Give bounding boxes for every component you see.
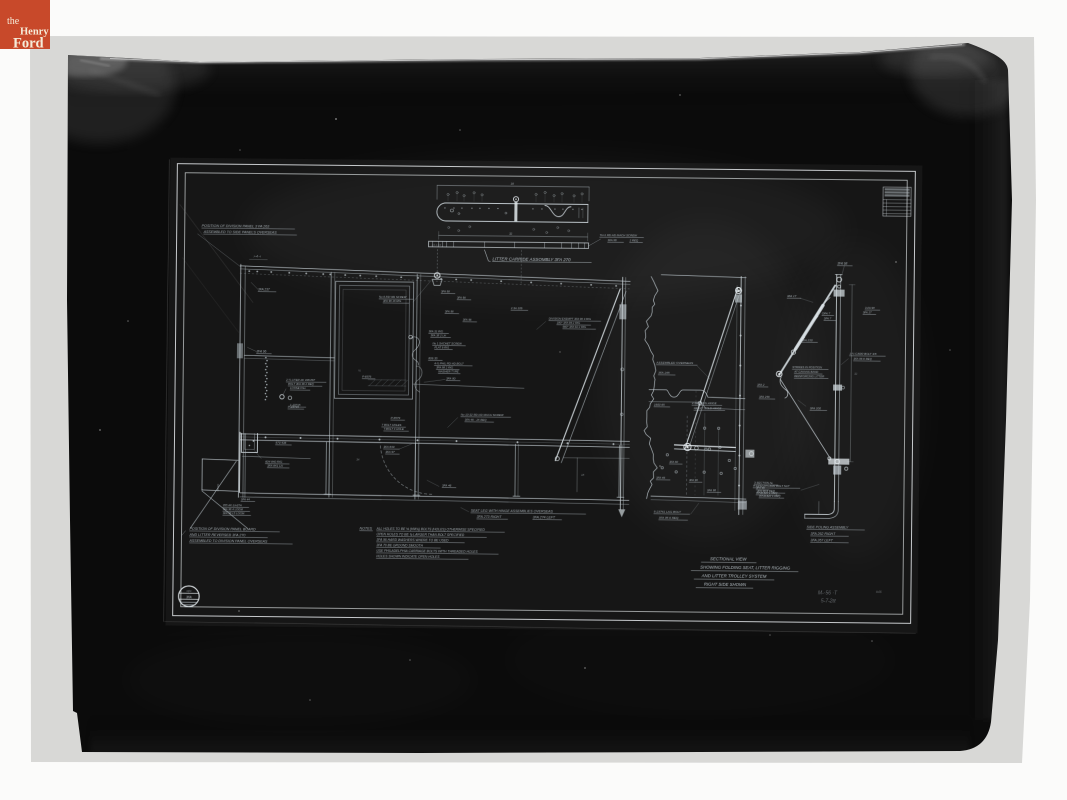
svg-text:3FA 95 6 REQ: 3FA 95 6 REQ (659, 516, 679, 520)
svg-text:3FA 97: 3FA 97 (385, 450, 395, 454)
svg-text:3FA 17: 3FA 17 (863, 310, 872, 314)
svg-text:oȳo: oȳo (186, 589, 191, 593)
svg-text:LOOSE FILL: LOOSE FILL (290, 386, 306, 390)
svg-text:3FA 96: 3FA 96 (463, 318, 472, 322)
svg-text:3FA 200: 3FA 200 (810, 406, 821, 410)
svg-text:AND LITTER REVERSED 3FA 270: AND LITTER REVERSED 3FA 270 (188, 533, 245, 538)
svg-text:RIGHT SIDE SHOWN: RIGHT SIDE SHOWN (704, 582, 747, 587)
svg-text:3FA 7: 3FA 7 (824, 316, 832, 320)
svg-text:AND LITTER TROLLEY SYSTEM: AND LITTER TROLLEY SYSTEM (701, 573, 767, 579)
svg-text:3FA 60: 3FA 60 (669, 460, 678, 464)
svg-text:Ford: Ford (13, 36, 44, 52)
svg-text:No 10-32 RD HD MACH SCREW: No 10-32 RD HD MACH SCREW (461, 413, 504, 417)
svg-text:3FA 46: 3FA 46 (442, 483, 452, 487)
svg-text:the: the (7, 16, 20, 27)
svg-text:3FA 44: 3FA 44 (241, 497, 250, 501)
svg-text:#46: #46 (876, 590, 882, 594)
svg-text:NOTES: NOTES (360, 527, 373, 531)
svg-text:1 6 1 1 6: 1 6 1 1 6 (432, 244, 442, 247)
svg-text:3FA 641 LH: 3FA 641 LH (267, 464, 284, 468)
svg-text:ASSEMBLED OVERSEAS: ASSEMBLED OVERSEAS (655, 361, 694, 365)
svg-text:5-7-2ℓℓ: 5-7-2ℓℓ (821, 598, 836, 604)
svg-text:1-½ CARR BOLT 3/8: 1-½ CARR BOLT 3/8 (849, 352, 876, 356)
svg-text:SIDE POLING ASSEMBLY: SIDE POLING ASSEMBLY (807, 525, 849, 529)
svg-text:3-FA 98: 3-FA 98 (865, 306, 875, 310)
svg-text:FLAT 6 RIG: FLAT 6 RIG (434, 345, 450, 349)
svg-text:3FA 273 RIGHT: 3FA 273 RIGHT (477, 515, 503, 519)
svg-text:OPA 7: OPA 7 (822, 311, 831, 315)
svg-text:⊢4⊣: ⊢4⊣ (253, 254, 262, 258)
svg-text:P-6579: P-6579 (362, 375, 372, 379)
svg-text:LITTER CARRIDE ASSOMBLY 3FA 2: LITTER CARRIDE ASSOMBLY 3FA 270 (492, 256, 571, 262)
svg-text:16: 16 (511, 182, 515, 186)
svg-text:To=1 RD HD MACH SCREW: To=1 RD HD MACH SCREW (600, 233, 638, 237)
svg-text:3FA 96: 3FA 96 (689, 478, 698, 482)
svg-text:3FA 640: 3FA 640 (383, 445, 394, 449)
svg-text:3FA 98: 3FA 98 (707, 488, 716, 492)
svg-text:660° 3FA 92 2 RIG: 660° 3FA 92 2 RIG (563, 325, 587, 329)
svg-text:WASHER TYPE: WASHER TYPE (438, 369, 458, 373)
svg-text:3FA 90: 3FA 90 (446, 376, 456, 380)
svg-text:3FA 96 16 RIG: 3FA 96 16 RIG (383, 299, 402, 303)
svg-text:1600 65: 1600 65 (654, 403, 665, 407)
svg-text:SECTIONAL VIEW: SECTIONAL VIEW (710, 556, 747, 561)
svg-text:3FA: 3FA (186, 595, 192, 599)
svg-text:32: 32 (854, 372, 858, 376)
svg-text:3FA 98: 3FA 98 (837, 262, 847, 266)
svg-text:2 REQ: 2 REQ (629, 238, 639, 242)
svg-text:18: 18 (581, 473, 585, 477)
svg-text:2.3A 106: 2.3A 106 (510, 306, 523, 310)
svg-text:3FA 70 BE GROUND SMOOTH: 3FA 70 BE GROUND SMOOTH (376, 543, 423, 547)
svg-text:3FA 96: 3FA 96 (457, 296, 466, 300)
svg-text:3FA 96 6 REQ: 3FA 96 6 REQ (853, 357, 872, 361)
svg-text:P-23715: P-23715 (288, 405, 299, 409)
svg-text:806 35: 806 35 (428, 356, 438, 360)
svg-text:32: 32 (509, 232, 513, 236)
svg-text:3FA 262 RIGHT: 3FA 262 RIGHT (811, 532, 837, 536)
svg-text:REINFORCING LITTER: REINFORCING LITTER (794, 374, 824, 378)
svg-text:M-·56 ·T: M-·56 ·T (818, 590, 838, 596)
svg-text:3FA 267 LEFT: 3FA 267 LEFT (810, 538, 833, 542)
svg-text:3FA 17: 3FA 17 (787, 294, 797, 298)
svg-text:3FA 96: 3FA 96 (256, 349, 266, 353)
svg-text:2-SECTION HINGE: 2-SECTION HINGE (691, 401, 717, 405)
svg-text:3FA 38 2 LH: 3FA 38 2 LH (431, 333, 447, 337)
svg-text:3FA 246: 3FA 246 (759, 395, 770, 399)
svg-text:3FA 46 - 24 REQ: 3FA 46 - 24 REQ (465, 418, 488, 422)
svg-text:3FA 237: 3FA 237 (258, 288, 270, 292)
svg-text:34: 34 (356, 458, 360, 462)
svg-text:3FA 46: 3FA 46 (656, 476, 665, 480)
svg-text:3FA 245: 3FA 245 (658, 371, 670, 375)
svg-text:P-6579: P-6579 (391, 416, 401, 420)
svg-text:3FA 96 6 REQ: 3FA 96 6 REQ (757, 489, 776, 493)
svg-text:3FA 98: 3FA 98 (608, 238, 617, 242)
svg-text:3FA 98: 3FA 98 (445, 309, 454, 313)
svg-text:4-13/32-24 CARR BOLT NUT: 4-13/32-24 CARR BOLT NUT (753, 484, 790, 488)
svg-text:3FA 98 L5 LOOM: 3FA 98 L5 LOOM (223, 511, 245, 515)
svg-text:570 436: 570 436 (275, 441, 286, 445)
svg-text:5-23741 LAG BOLT: 5-23741 LAG BOLT (654, 510, 682, 514)
svg-text:SHOWING FOLDING SEAT, LITTER R: SHOWING FOLDING SEAT, LITTER RIGGING (700, 565, 791, 571)
svg-text:3FA 274 LEFT: 3FA 274 LEFT (533, 515, 556, 519)
svg-text:T-BOLT 4 HOLE: T-BOLT 4 HOLE (384, 427, 404, 431)
svg-text:3FA 98: 3FA 98 (441, 289, 450, 293)
svg-text:WASHER 1-REQ: WASHER 1-REQ (759, 494, 781, 498)
svg-text:3FA 2: 3FA 2 (757, 383, 765, 387)
svg-text:3FA 230: 3FA 230 (802, 338, 813, 342)
svg-text:HEAVY GOLD HINGE: HEAVY GOLD HINGE (694, 406, 722, 410)
